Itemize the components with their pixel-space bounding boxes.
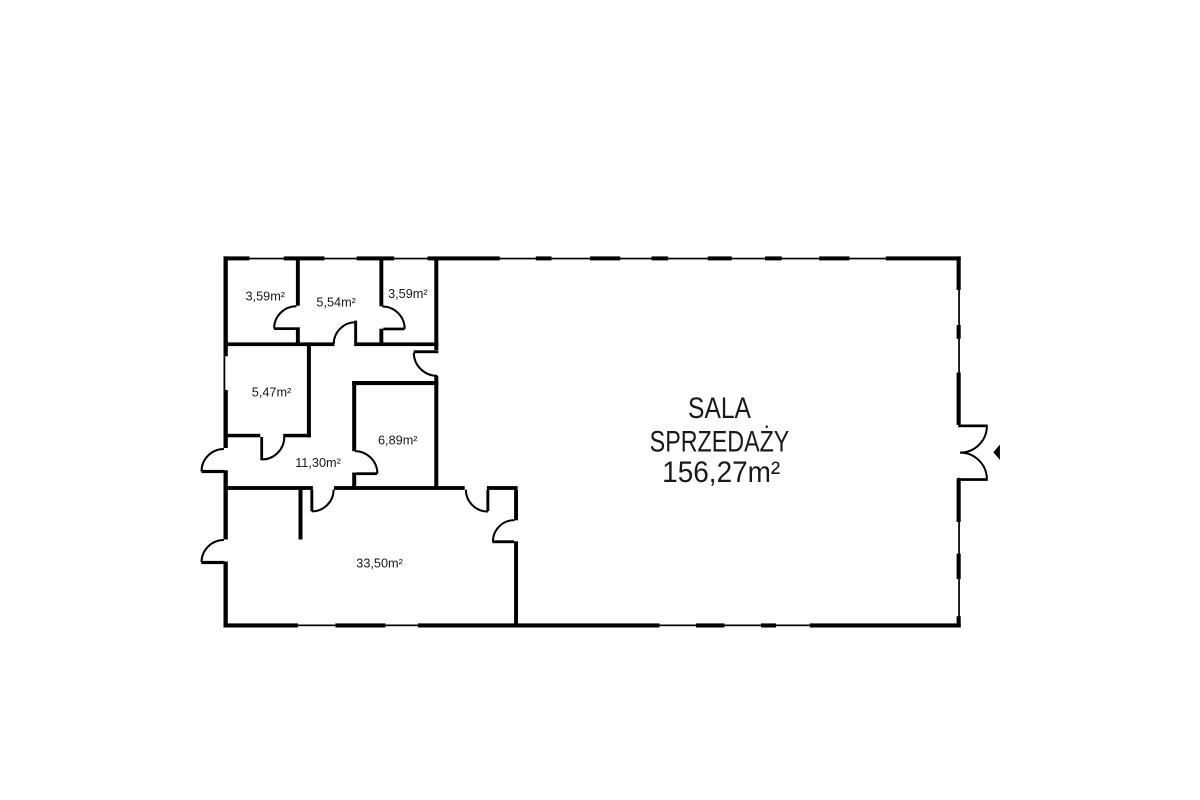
svg-text:3,59m²: 3,59m² <box>388 287 428 301</box>
svg-text:156,27m²: 156,27m² <box>662 456 780 489</box>
svg-text:11,30m²: 11,30m² <box>295 456 341 470</box>
svg-text:33,50m²: 33,50m² <box>356 556 403 570</box>
svg-text:5,54m²: 5,54m² <box>316 296 356 310</box>
svg-text:SPRZEDAŻY: SPRZEDAŻY <box>650 423 790 458</box>
svg-text:6,89m²: 6,89m² <box>378 433 418 447</box>
svg-text:3,59m²: 3,59m² <box>246 290 286 304</box>
svg-text:5,47m²: 5,47m² <box>252 386 291 400</box>
svg-text:SALA: SALA <box>688 390 752 424</box>
